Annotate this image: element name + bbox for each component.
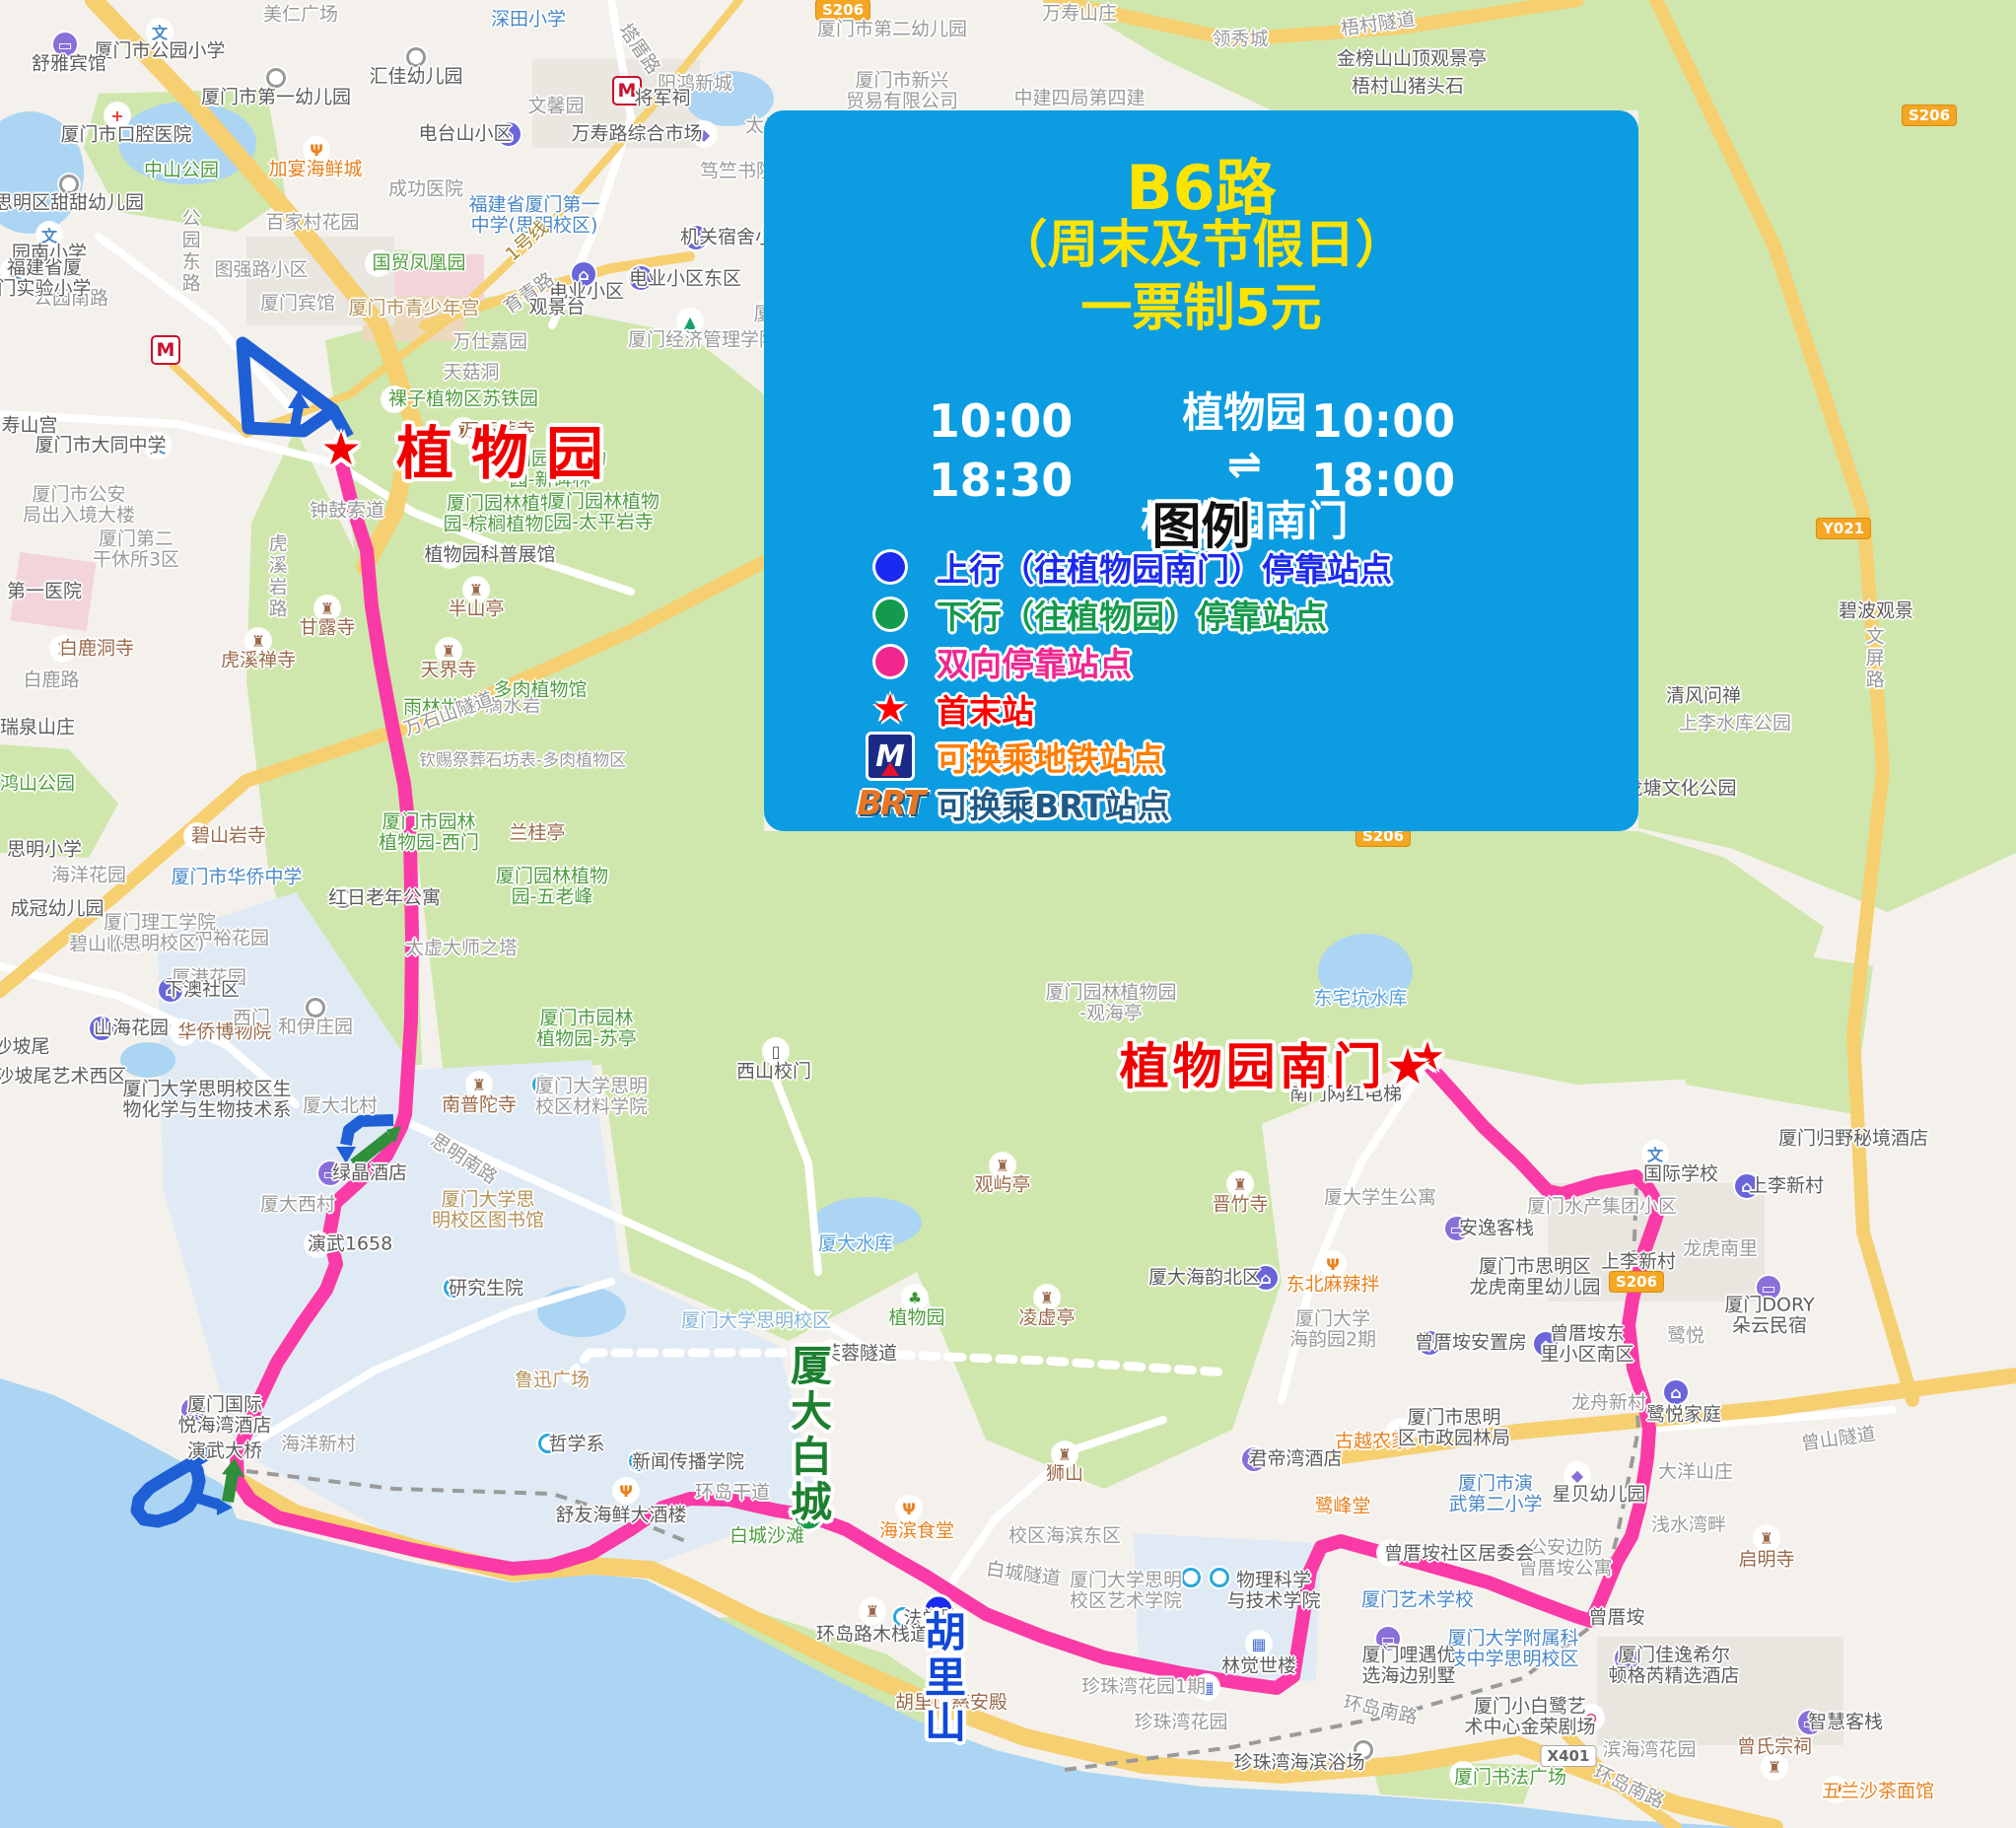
legend-item: M可换乘地铁站点: [858, 734, 1164, 779]
departure-time-right: 10:00: [1311, 394, 1455, 448]
terminal-star-icon: ★: [320, 422, 361, 475]
legend-item-label: 下行（往植物园）停靠站点: [937, 591, 1327, 638]
legend-item-label: 可换乘地铁站点: [937, 733, 1164, 780]
stop-dot-icon: [858, 647, 923, 676]
legend-item: 双向停靠站点: [858, 639, 1132, 684]
legend-item-label: 双向停靠站点: [937, 638, 1132, 685]
map-canvas: 文▭⌂◆+文Ψ⌂⌂⌂♣▲♣♜♜♜♜♜♜文文♜♜♜⌂⌂◆▭♜▯♜♣♜♜♜♜▭⌂Ψ⌂…: [0, 0, 2016, 1828]
brt-logo-icon: BRT: [858, 784, 923, 823]
route-fare: 一票制5元: [764, 266, 1638, 340]
route-info-panel: B6路 （周末及节假日） 一票制5元 植物园 ⇌ 植物园南门 10:0010:0…: [764, 110, 1638, 831]
arrows-icon: ⇌: [1184, 440, 1305, 488]
terminal-star-icon: ★: [858, 686, 923, 732]
legend-item-label: 首末站: [937, 685, 1034, 733]
terminal-name-label: 厦大白城: [779, 1344, 839, 1525]
legend-item: 上行（往植物园南门）停靠站点: [858, 544, 1392, 590]
departure-time-left: 10:00: [929, 394, 1073, 448]
terminal-name-label: 植物园南门★: [1120, 1027, 1434, 1098]
legend-item: BRT可换乘BRT站点: [858, 781, 1170, 826]
stop-dot-icon: [858, 552, 923, 582]
metro-logo-icon: M: [858, 732, 923, 781]
legend-item-label: 上行（往植物园南门）停靠站点: [937, 543, 1392, 591]
legend-item: ★首末站: [858, 686, 1034, 732]
terminal-name-label: 植物园: [396, 407, 621, 490]
terminal-name-label: 胡里山: [913, 1610, 973, 1746]
terminal-from: 植物园: [1182, 388, 1306, 437]
stop-dot-icon: [858, 599, 923, 629]
legend-item-label: 可换乘BRT站点: [937, 780, 1170, 827]
legend-item: 下行（往植物园）停靠站点: [858, 592, 1327, 637]
